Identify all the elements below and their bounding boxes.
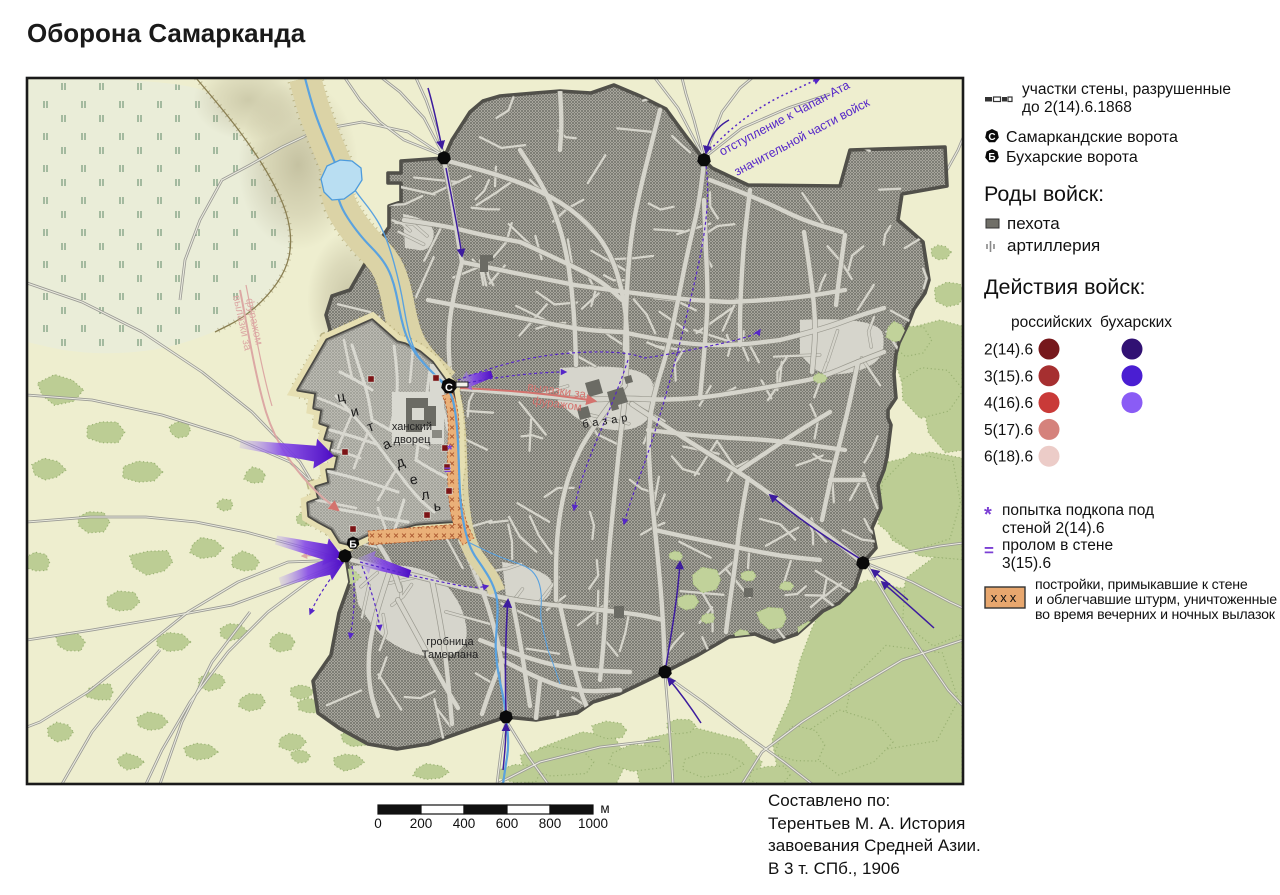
svg-text:*: * (447, 441, 453, 457)
svg-text:Б: Б (988, 152, 995, 163)
svg-text:м: м (600, 801, 609, 816)
svg-text:Действия войск:: Действия войск: (984, 275, 1145, 299)
svg-text:С: С (445, 382, 453, 394)
svg-text:пехота: пехота (1007, 214, 1060, 233)
svg-text:Тамерлана: Тамерлана (422, 649, 479, 661)
svg-text:Самаркандские ворота: Самаркандские ворота (1006, 129, 1178, 146)
svg-text:6(18).6: 6(18).6 (984, 449, 1033, 466)
svg-text:4(16).6: 4(16).6 (984, 395, 1033, 412)
svg-text:бухарских: бухарских (1100, 314, 1172, 331)
svg-text:3(15).6: 3(15).6 (1002, 555, 1051, 572)
svg-text:600: 600 (496, 816, 519, 831)
svg-text:постройки, примыкавшие к стене: постройки, примыкавшие к стене (1035, 577, 1248, 593)
svg-text:Бухарские ворота: Бухарские ворота (1006, 149, 1138, 166)
svg-text:5(17).6: 5(17).6 (984, 422, 1033, 439)
svg-text:=: = (984, 541, 994, 560)
svg-text:до 2(14).6.1868: до 2(14).6.1868 (1022, 99, 1132, 116)
svg-text:2(14).6: 2(14).6 (984, 342, 1033, 359)
svg-text:=: = (444, 463, 451, 477)
svg-text:пролом в стене: пролом в стене (1002, 537, 1113, 554)
svg-text:*: * (984, 504, 992, 526)
svg-text:200: 200 (410, 816, 433, 831)
svg-text:ь: ь (433, 497, 442, 514)
svg-text:участки стены, разрушенные: участки стены, разрушенные (1022, 81, 1231, 98)
svg-text:артиллерия: артиллерия (1007, 236, 1100, 255)
svg-text:попытка подкопа под: попытка подкопа под (1002, 502, 1154, 519)
svg-text:и облегчавшие штурм, уничтожен: и облегчавшие штурм, уничтоженные (1035, 592, 1277, 608)
svg-text:400: 400 (453, 816, 476, 831)
svg-text:гробница: гробница (426, 636, 474, 648)
svg-text:ханский: ханский (392, 421, 432, 433)
svg-text:Б: Б (349, 539, 357, 551)
svg-text:3(15).6: 3(15).6 (984, 368, 1033, 385)
svg-text:российских: российских (1011, 314, 1092, 331)
svg-text:стеной 2(14).6: стеной 2(14).6 (1002, 520, 1105, 537)
svg-text:во время вечерних и ночных выл: во время вечерних и ночных вылазок (1035, 607, 1276, 623)
svg-text:1000: 1000 (578, 816, 608, 831)
svg-text:Роды войск:: Роды войск: (984, 182, 1104, 206)
svg-text:0: 0 (374, 816, 382, 831)
svg-text:ххх: ххх (991, 590, 1020, 605)
svg-text:С: С (988, 132, 995, 143)
svg-text:дворец: дворец (394, 434, 431, 446)
svg-text:800: 800 (539, 816, 562, 831)
